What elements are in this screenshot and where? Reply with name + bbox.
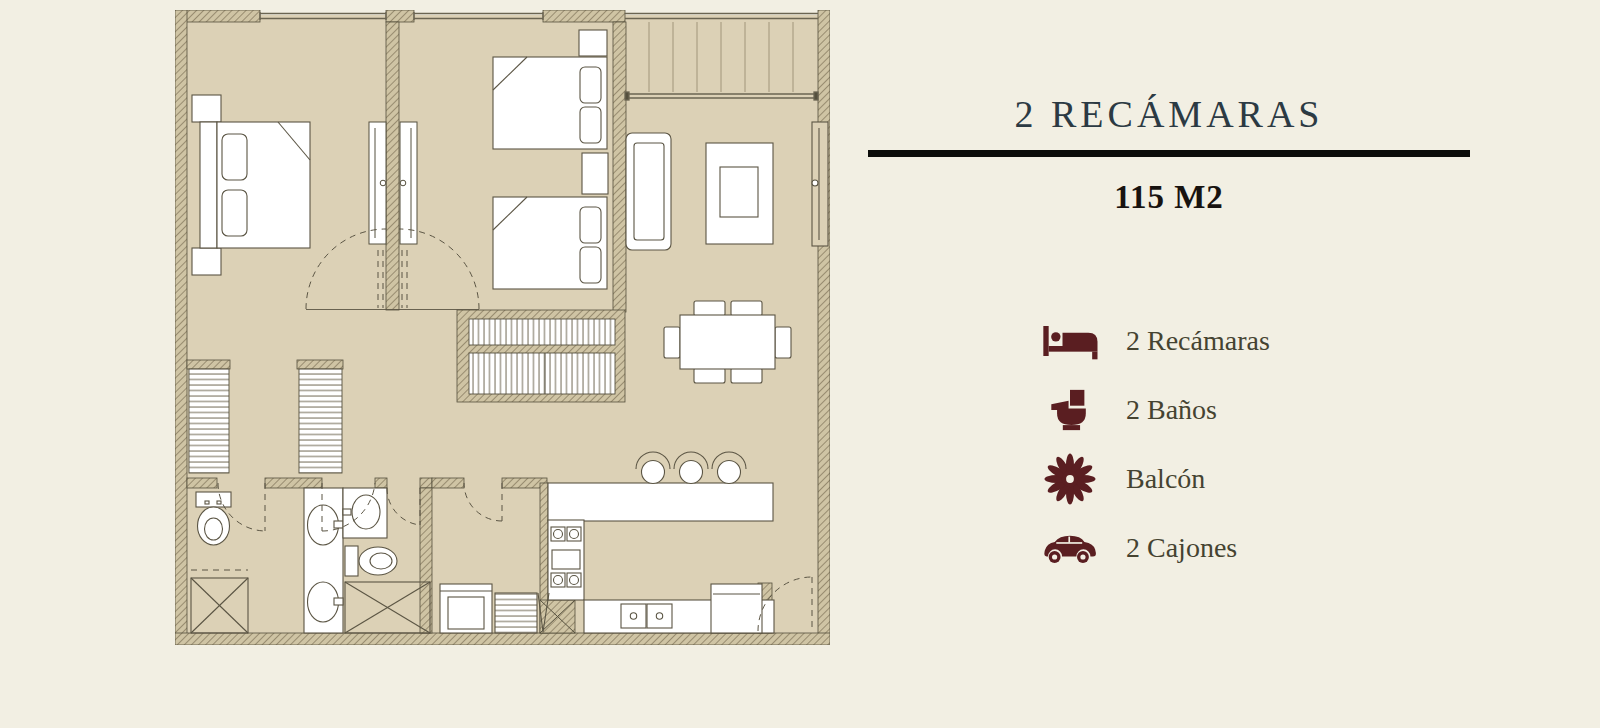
page-title: 2 RECÁMARAS xyxy=(868,92,1470,136)
bedroom2-closets xyxy=(469,319,615,394)
bedroom1-furniture xyxy=(192,95,310,275)
feature-label: 2 Cajones xyxy=(1126,532,1237,564)
vanity-double-sink xyxy=(304,488,343,633)
feature-label: Balcón xyxy=(1126,463,1205,495)
floor-plan-drawing xyxy=(175,10,830,645)
feature-row-balcony: Balcón xyxy=(1038,444,1468,513)
divider-line xyxy=(868,150,1470,157)
feature-row-bedrooms: 2 Recámaras xyxy=(1038,306,1468,375)
feature-list: 2 Recámaras 2 Baños xyxy=(1038,306,1468,582)
area-value: 115 M2 xyxy=(868,179,1470,216)
feature-row-parking: 2 Cajones xyxy=(1038,513,1468,582)
floor-plan xyxy=(175,10,830,645)
info-panel: 2 RECÁMARAS 115 M2 xyxy=(868,92,1470,216)
feature-label: 2 Baños xyxy=(1126,394,1217,426)
bed-icon xyxy=(1038,319,1102,363)
feature-row-bathrooms: 2 Baños xyxy=(1038,375,1468,444)
car-icon xyxy=(1038,532,1102,564)
flower-icon xyxy=(1038,452,1102,506)
feature-label: 2 Recámaras xyxy=(1126,325,1270,357)
toilet-icon xyxy=(1038,386,1102,434)
